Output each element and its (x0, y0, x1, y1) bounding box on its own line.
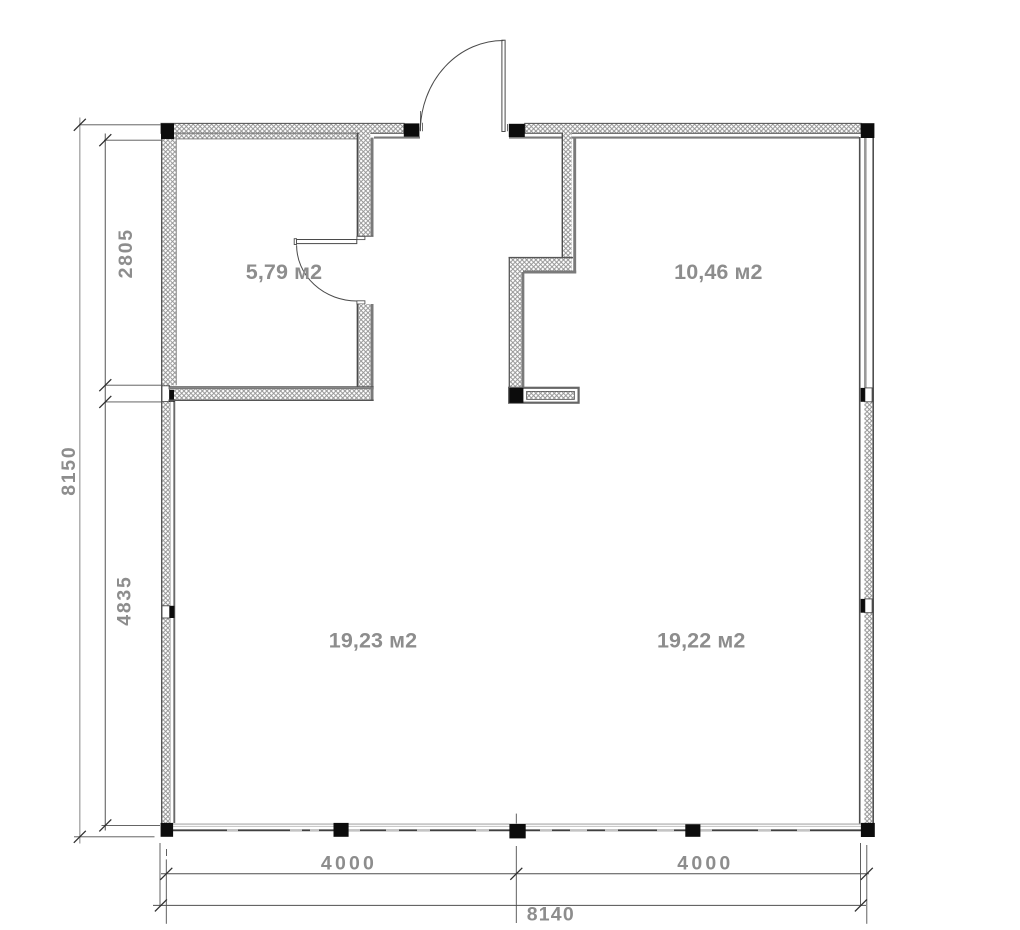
svg-text:2805: 2805 (115, 228, 137, 278)
svg-text:8150: 8150 (58, 446, 80, 496)
svg-text:5,79 м2: 5,79 м2 (246, 260, 322, 284)
svg-text:8140: 8140 (527, 904, 575, 926)
svg-text:19,23 м2: 19,23 м2 (329, 628, 417, 652)
svg-text:19,22 м2: 19,22 м2 (657, 628, 745, 652)
svg-text:4835: 4835 (114, 576, 136, 626)
svg-text:4000: 4000 (677, 852, 733, 874)
svg-text:10,46 м2: 10,46 м2 (674, 260, 762, 284)
svg-text:4000: 4000 (321, 852, 377, 874)
